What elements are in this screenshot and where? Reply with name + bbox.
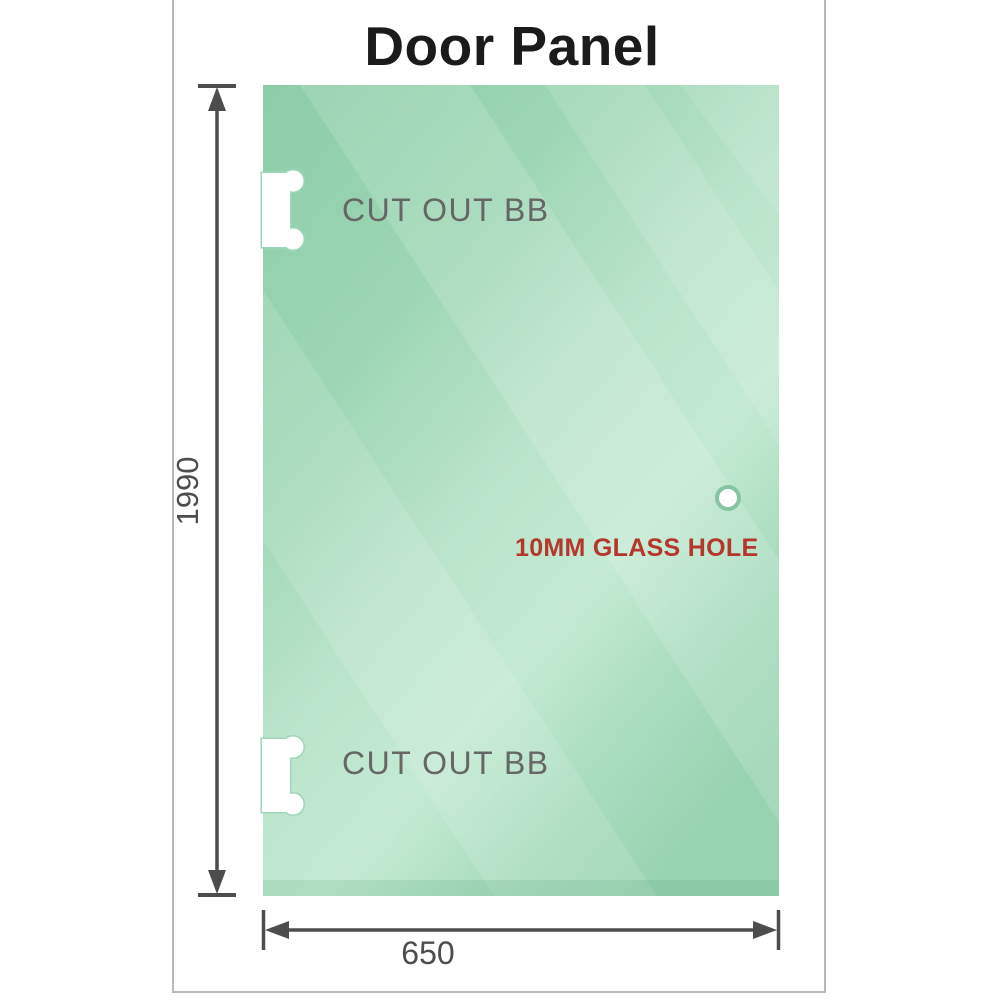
width-dimension-label: 650 (398, 937, 458, 969)
height-dimension-label: 1990 (172, 451, 204, 531)
diagram-canvas (0, 0, 1000, 1000)
cutout-label-bottom: CUT OUT BB (342, 747, 550, 779)
cutout-label-top: CUT OUT BB (342, 194, 550, 226)
door-panel-diagram: Door Panel (0, 0, 1000, 1000)
glass-hole-label: 10MM GLASS HOLE (515, 536, 758, 561)
glass-hole (717, 487, 739, 509)
width-dimension-arrow (264, 910, 779, 950)
